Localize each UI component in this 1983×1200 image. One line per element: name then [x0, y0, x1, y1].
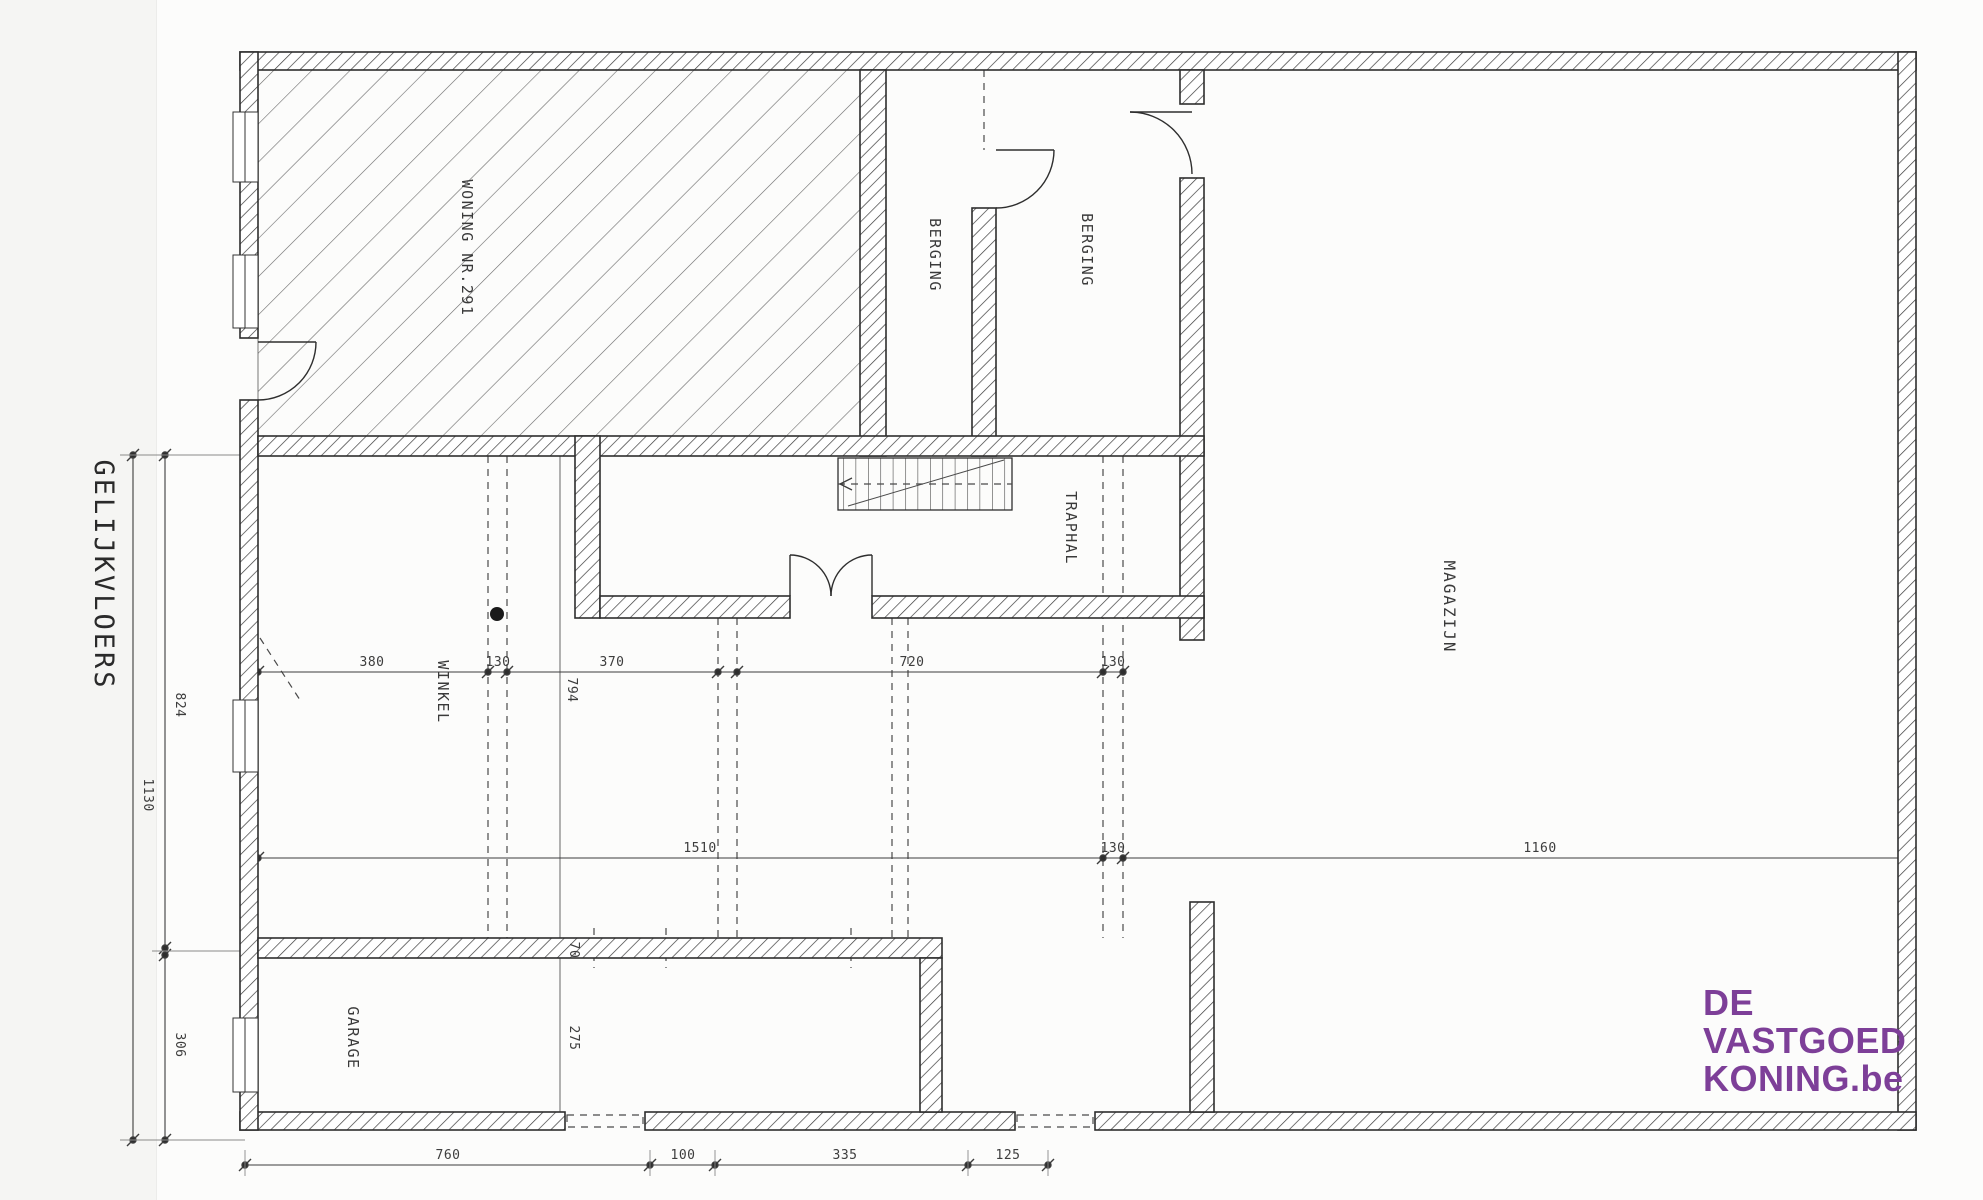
room-label-berging-left: BERGING [926, 218, 944, 292]
door-berging-right [1130, 112, 1192, 174]
dim-top-370: 370 [600, 655, 625, 670]
floor-title: GELIJKVLOERS [88, 459, 119, 690]
woning-hatched-area [258, 70, 860, 436]
outer-wall-bottom-left [240, 1112, 565, 1130]
wall-traphal-left [575, 436, 600, 618]
dim-top-130b: 130 [1101, 655, 1126, 670]
dim-garage-70: 70 [566, 942, 581, 959]
room-label-traphal: TRAPHAL [1062, 491, 1080, 565]
dimension-lines [120, 449, 1914, 1176]
wall-woning-berging [860, 70, 886, 456]
wall-garage-back [258, 938, 942, 958]
dim-bot-125: 125 [996, 1148, 1021, 1163]
double-door-traphal [790, 555, 872, 596]
watermark-line-2: VASTGOED [1703, 1022, 1906, 1060]
watermark-line-1: DE [1703, 984, 1906, 1022]
room-label-woning: WONING NR.291 [458, 180, 476, 317]
wall-between-bergings [972, 208, 996, 456]
wall-berging-magazijn [1180, 178, 1204, 640]
dim-left-1130: 1130 [140, 778, 155, 811]
room-label-magazijn: MAGAZIJN [1440, 560, 1459, 653]
outer-wall-top [240, 52, 1916, 70]
room-label-garage: GARAGE [344, 1006, 362, 1069]
dim-left-306: 306 [172, 1033, 187, 1058]
dim-left-824: 824 [172, 693, 187, 718]
wall-berging-magazijn-top [1180, 70, 1204, 104]
floorplan-page: WONING NR.291 BERGING BERGING TRAPHAL MA… [0, 0, 1983, 1200]
staircase [838, 458, 1012, 510]
wall-bottom-right-vertical [1190, 902, 1214, 1112]
rear-door-opening [1017, 1115, 1093, 1127]
outer-wall-right [1898, 52, 1916, 1130]
wall-bottom-mid-vertical [920, 958, 942, 1112]
dim-bot-100: 100 [671, 1148, 696, 1163]
room-label-winkel: WINKEL [434, 660, 452, 723]
dim-top-380: 380 [360, 655, 385, 670]
door-berging-left [996, 150, 1054, 208]
dim-garage-275: 275 [566, 1026, 581, 1051]
dim-bot-335: 335 [833, 1148, 858, 1163]
structural-column-dot [490, 607, 504, 621]
dim-top-720: 720 [900, 655, 925, 670]
room-label-berging-right: BERGING [1078, 213, 1096, 287]
dim-mid-1510: 1510 [683, 841, 716, 856]
garage-door-opening [567, 1115, 643, 1127]
outer-wall-bottom-mid [645, 1112, 1015, 1130]
dim-winkel-794: 794 [564, 678, 579, 703]
dim-top-130a: 130 [486, 655, 511, 670]
dim-bot-760: 760 [436, 1148, 461, 1163]
wall-traphal-bottom-right [872, 596, 1204, 618]
dim-mid-1160: 1160 [1523, 841, 1556, 856]
outer-wall-bottom-right [1095, 1112, 1916, 1130]
wall-main-horizontal [258, 436, 1204, 456]
vastgoedkoning-watermark: DE VASTGOED KONING.be [1703, 984, 1906, 1098]
watermark-line-3: KONING.be [1703, 1060, 1906, 1098]
wall-traphal-bottom-left [600, 596, 790, 618]
dim-mid-130: 130 [1101, 841, 1126, 856]
floorplan-drawing: WONING NR.291 BERGING BERGING TRAPHAL MA… [0, 0, 1983, 1200]
